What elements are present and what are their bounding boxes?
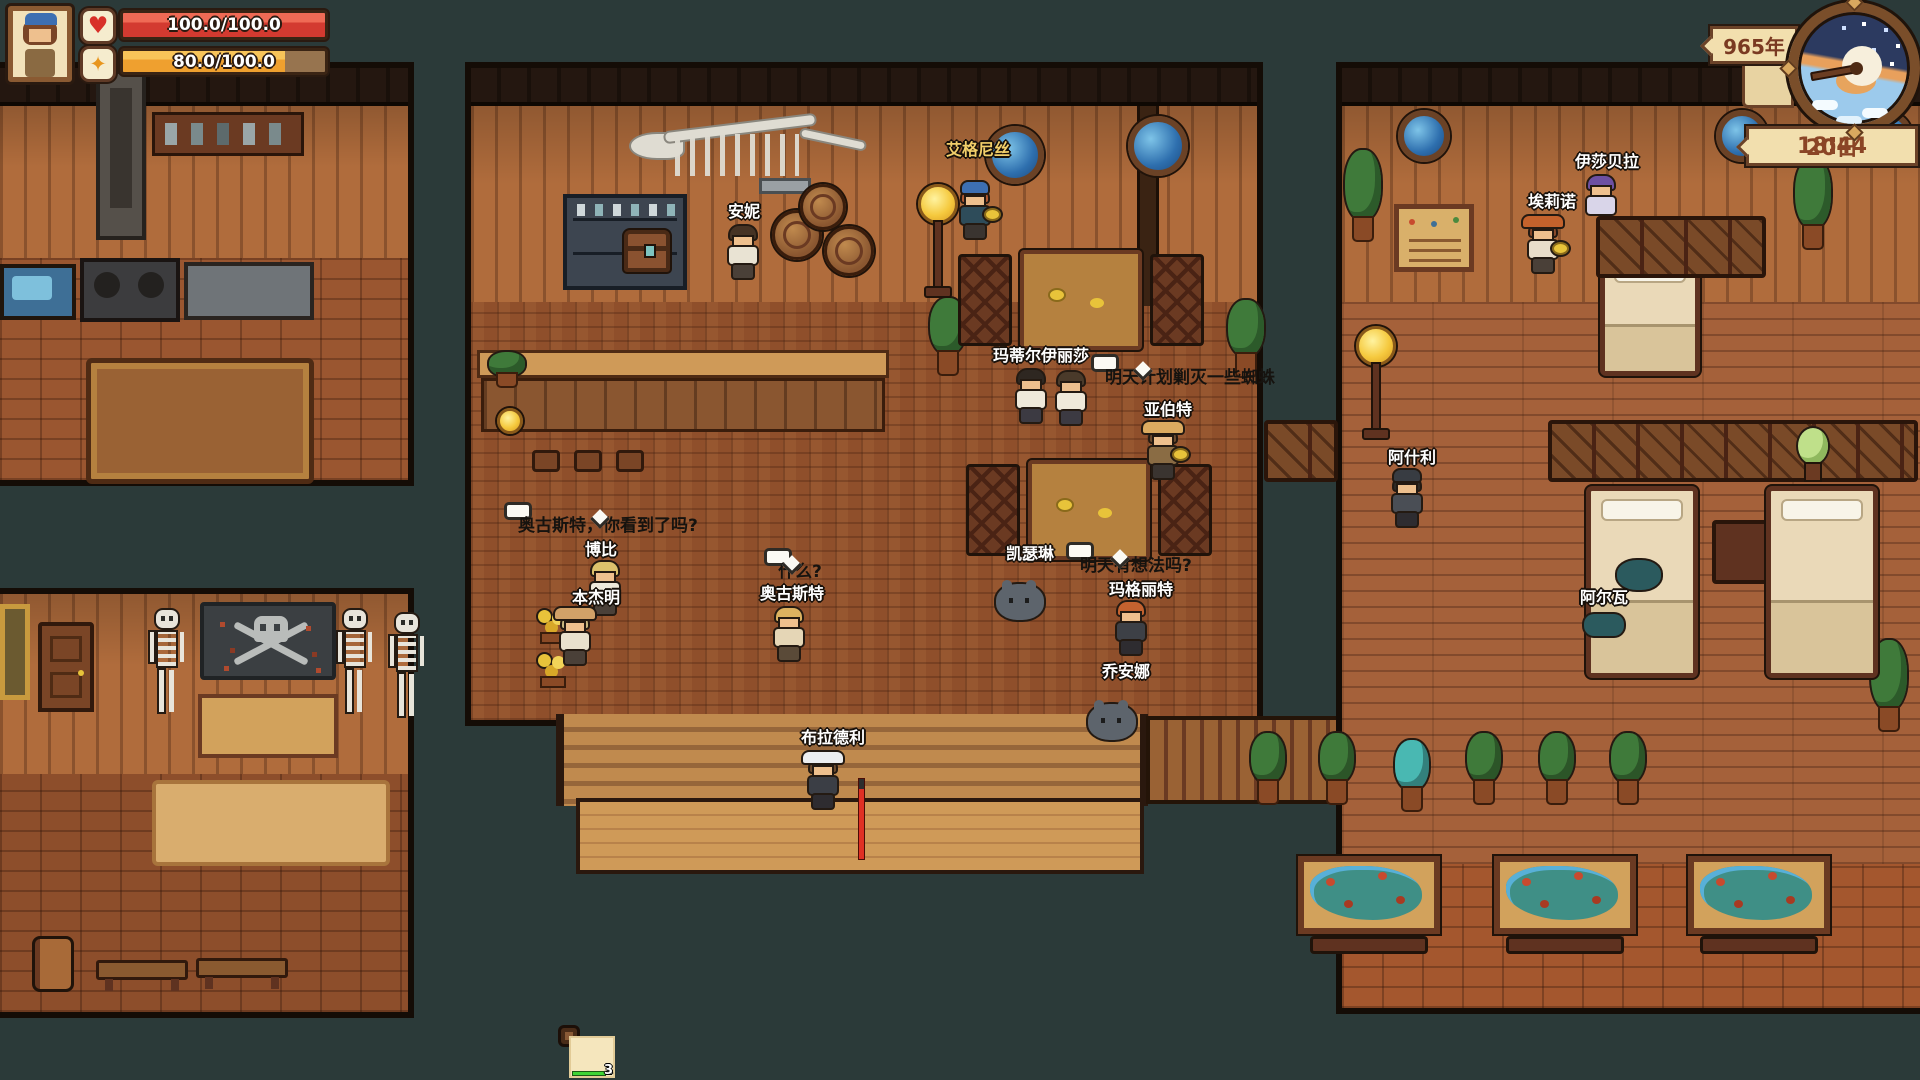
hotbar: 313 — [561, 1028, 577, 1044]
skeleton-skull — [344, 610, 366, 628]
treasure-chest[interactable] — [624, 230, 670, 272]
bubble-august-question: 奥古斯特，你看到了吗? — [504, 502, 532, 520]
plant-pot — [1352, 216, 1374, 242]
deck-plant — [1395, 740, 1429, 826]
dining-table-set — [958, 250, 1206, 350]
npc-margaret[interactable] — [1114, 602, 1148, 662]
npc-legs — [1021, 409, 1041, 422]
plant-foliage — [1467, 733, 1501, 783]
bulletin-board[interactable] — [1394, 204, 1474, 272]
skeleton-leg — [347, 670, 352, 712]
npc-name-label: 艾格尼丝 — [946, 136, 1010, 160]
portrait-body — [25, 49, 55, 77]
plant-foliage — [1320, 733, 1354, 783]
npc-torso — [1587, 197, 1615, 214]
bar-stool — [574, 450, 602, 472]
year-banner: 965年 — [1710, 26, 1798, 64]
npc-hat — [803, 752, 843, 763]
tide-pool-table — [1688, 856, 1830, 956]
npc-matilda-companion[interactable] — [1054, 372, 1088, 432]
durability-bar — [572, 1071, 606, 1076]
lamp-base — [1362, 428, 1390, 440]
npc-name-label: 布拉德利 — [801, 724, 865, 748]
tide-pool-table — [1298, 856, 1440, 956]
npc-face — [1062, 383, 1080, 392]
bed-blanket — [1771, 600, 1873, 673]
npc-face — [966, 197, 984, 206]
npc-face — [1122, 613, 1140, 622]
creature-ear — [1002, 580, 1012, 589]
npc-albert[interactable] — [1146, 422, 1180, 482]
museum-rug — [152, 780, 390, 866]
energy-value: 80.0/100.0 — [123, 51, 325, 72]
lamp-post — [918, 184, 958, 310]
npc-face — [596, 573, 614, 582]
npc-name-label: 阿什利 — [1388, 444, 1436, 468]
npc-hat — [555, 608, 595, 619]
deck-plant — [1251, 733, 1285, 819]
npc-name-label: 玛蒂尔伊丽莎 — [993, 342, 1089, 366]
skeleton-ribs — [346, 632, 364, 666]
npc-benjamin[interactable] — [558, 608, 592, 668]
creature-eye — [1009, 598, 1013, 603]
table-base — [1506, 936, 1624, 954]
health-icon-box: ♥ — [80, 8, 116, 44]
kitchen-table — [86, 358, 314, 484]
crab-icon — [1716, 878, 1725, 886]
npc-torso — [1393, 495, 1421, 512]
kitchen-room — [0, 62, 414, 486]
bed-blanket — [1605, 324, 1695, 371]
plant-foliage — [1795, 158, 1831, 228]
sleeping-body — [1584, 614, 1624, 636]
skeleton-exhibit — [388, 614, 426, 754]
npc-name-label: 奥古斯特 — [760, 580, 824, 604]
npc-name-label: 玛格丽特 — [1109, 576, 1173, 600]
bubble-tomorrow: 明天有想法吗? — [1066, 542, 1094, 560]
portrait-hat — [25, 13, 57, 25]
skeleton-ribs — [398, 636, 416, 670]
kitchen-counter — [184, 262, 314, 320]
bed-pillow — [1601, 499, 1683, 521]
nightstand — [1712, 520, 1768, 584]
food-plate-icon — [984, 208, 1001, 221]
npc-legs — [1153, 465, 1173, 478]
plant-pot — [1257, 779, 1279, 805]
kitchen-shelf — [152, 112, 304, 156]
npc-torso — [561, 633, 589, 650]
bench — [96, 960, 188, 980]
npc-torso — [729, 247, 757, 264]
skeleton-leg — [159, 670, 164, 712]
npc-name-label: 亚伯特 — [1144, 396, 1192, 420]
chest-lock-icon — [644, 244, 656, 258]
bench-leg — [105, 979, 113, 991]
game-screen: 安妮艾格尼丝玛蒂尔伊丽莎亚伯特凯瑟琳玛格丽特乔安娜奥古斯特博比本杰明布拉德利阿什… — [0, 0, 1920, 1080]
npc-name-label: 本杰明 — [572, 584, 620, 608]
npc-ashley[interactable] — [1390, 470, 1424, 530]
plant-foliage — [1345, 150, 1381, 220]
npc-torso — [775, 629, 803, 646]
day-night-clock — [1788, 2, 1920, 134]
bed-pillow — [1781, 499, 1863, 521]
tavern-wall-top — [471, 68, 1257, 106]
cloud-icon — [1812, 100, 1838, 110]
health-bar: 100.0/100.0 — [120, 10, 328, 40]
plant-foliage — [1395, 740, 1429, 790]
plant-pot — [937, 350, 959, 376]
lamp-post — [1356, 326, 1396, 452]
npc-face — [734, 237, 752, 246]
npc-name-label: 埃莉诺 — [1528, 188, 1576, 212]
npc-name-label: 安妮 — [728, 198, 760, 222]
food-plate-icon — [1172, 448, 1189, 461]
basket — [540, 676, 566, 688]
plant-foliage — [1251, 733, 1285, 783]
plant-pot — [1802, 224, 1824, 250]
creature-ear — [1094, 700, 1104, 709]
bed[interactable] — [1766, 486, 1878, 678]
npc-agnes[interactable] — [958, 182, 992, 242]
crab-icon — [1522, 878, 1531, 886]
barrel — [32, 936, 74, 992]
bench-row — [1548, 420, 1918, 482]
npc-hat — [1143, 422, 1183, 433]
npc-legs — [565, 651, 585, 664]
npc-face — [1398, 485, 1416, 494]
npc-legs — [779, 647, 799, 660]
npc-name-label: 伊莎贝拉 — [1575, 148, 1639, 172]
npc-isabella[interactable] — [1584, 176, 1618, 236]
bench-leg — [205, 977, 213, 989]
crab-icon — [1326, 878, 1335, 886]
skeleton-leg — [399, 674, 404, 716]
year-label: 965年 — [1723, 31, 1785, 60]
potted-plant — [489, 352, 525, 396]
heart-icon: ♥ — [88, 15, 109, 38]
plant-foliage — [1228, 300, 1264, 356]
energy-icon: ✦ — [89, 54, 107, 75]
npc-bradley[interactable] — [806, 752, 840, 812]
gold-frame — [0, 604, 30, 700]
lamp-glow-icon — [1356, 326, 1396, 366]
npc-hat — [1523, 216, 1563, 227]
portrait-face — [29, 29, 51, 42]
plant-pot — [1401, 786, 1423, 812]
porthole-icon — [1128, 116, 1188, 176]
energy-bar: 80.0/100.0 — [120, 48, 328, 75]
plant-stand — [1804, 462, 1822, 482]
kitchen-sink[interactable] — [0, 264, 76, 320]
npc-annie[interactable] — [726, 226, 760, 286]
bubble-what: 什么? — [764, 548, 792, 566]
npc-legs — [813, 795, 833, 808]
skeleton-skull — [396, 614, 418, 632]
lamp-post — [497, 408, 523, 452]
skeleton-skull — [156, 610, 178, 628]
creature-eye — [1101, 718, 1105, 723]
bench-left — [958, 254, 1012, 346]
deck-plant — [1540, 733, 1574, 819]
skeleton-arm — [150, 632, 154, 662]
lamp-base — [924, 286, 952, 298]
npc-face — [814, 767, 832, 776]
clock-knob — [1850, 62, 1863, 75]
npc-joanna[interactable] — [1094, 686, 1128, 746]
table-base — [1700, 936, 1818, 954]
npc-matilda-elisa[interactable] — [1014, 370, 1048, 430]
npc-legs — [965, 225, 985, 238]
player-portrait[interactable] — [8, 6, 72, 82]
egg-foliage — [1798, 428, 1828, 464]
barrel-band — [783, 221, 811, 249]
npc-august[interactable] — [772, 608, 806, 668]
potted-plant — [1795, 158, 1831, 268]
bench-row — [1264, 420, 1338, 482]
lamp-glow-icon — [918, 184, 958, 224]
player-cursor-marker — [858, 778, 865, 860]
npc-face — [566, 623, 584, 632]
creature-body — [996, 584, 1044, 620]
bench-right — [1150, 254, 1204, 346]
plant-foliage — [1611, 733, 1645, 783]
skeleton-arm — [390, 636, 394, 666]
npc-hat — [1394, 470, 1420, 481]
creature-body — [1088, 704, 1136, 740]
tide-pool-table — [1494, 856, 1636, 956]
chimney — [96, 70, 146, 240]
npc-face — [1534, 231, 1552, 240]
npc-face — [1154, 437, 1172, 446]
datetime-banner: 20日 18:44 — [1746, 126, 1918, 166]
npc-legs — [1397, 513, 1417, 526]
plant-pot — [1473, 779, 1495, 805]
npc-legs — [1121, 641, 1141, 654]
flowers-icon — [538, 654, 551, 667]
deck-fence — [1146, 716, 1344, 804]
barrel-band — [810, 194, 836, 220]
plant-pot — [1326, 779, 1348, 805]
npc-face — [1592, 187, 1610, 196]
bar-counter — [477, 350, 889, 434]
bench — [196, 958, 288, 978]
lamp-pole — [1371, 362, 1381, 432]
barrel — [824, 226, 874, 276]
npc-hat — [962, 182, 988, 193]
bar-stool — [532, 450, 560, 472]
plant-pot — [1546, 779, 1568, 805]
potted-plant — [1345, 150, 1381, 260]
bubble-text: 明天计划剿灭一些蜘蛛 — [1105, 363, 1275, 388]
table-base — [1310, 936, 1428, 954]
bubble-text: 明天有想法吗? — [1080, 551, 1192, 576]
food-plate-icon — [1552, 242, 1569, 255]
stars-icon — [1862, 22, 1866, 26]
npc-name-label: 凯瑟琳 — [1006, 540, 1054, 564]
plate-icon — [1056, 498, 1074, 512]
museum-counter — [198, 694, 338, 758]
npc-alva[interactable] — [1584, 610, 1618, 670]
npc-legs — [1061, 411, 1081, 424]
npc-kathleen[interactable] — [1002, 566, 1036, 626]
kitchen-stove[interactable] — [80, 258, 180, 322]
skeleton-exhibit — [148, 610, 186, 750]
porthole-icon — [1398, 110, 1450, 162]
wall-plaque — [759, 178, 811, 194]
deck-plant — [1467, 733, 1501, 819]
npc-torso — [1017, 391, 1045, 408]
egg-plant — [1794, 428, 1832, 486]
plant-foliage — [1540, 733, 1574, 783]
whale-skeleton — [631, 110, 867, 190]
npc-torso — [809, 777, 837, 794]
bubble-spider: 明天计划剿灭一些蜘蛛 — [1091, 354, 1119, 372]
barrel — [800, 184, 846, 230]
skeleton-eye — [161, 616, 165, 621]
flowers-icon — [538, 610, 551, 623]
lamp-glow-icon — [497, 408, 523, 434]
skeleton-ribs — [158, 632, 176, 666]
bar-stool — [616, 450, 644, 472]
barrel-band — [835, 237, 863, 265]
npc-name-label: 阿尔瓦 — [1580, 584, 1628, 608]
table — [1020, 250, 1142, 350]
bubble-text: 奥古斯特，你看到了吗? — [518, 511, 698, 536]
health-value: 100.0/100.0 — [123, 13, 325, 37]
npc-face — [1022, 381, 1040, 390]
lamp-pole — [933, 220, 943, 290]
door[interactable] — [38, 622, 94, 712]
plant-pot — [1617, 779, 1639, 805]
skeleton-eye — [401, 620, 405, 625]
skeleton-eye — [349, 616, 353, 621]
skull-flag — [200, 602, 336, 680]
npc-legs — [1533, 259, 1553, 272]
banner-arrow — [1700, 36, 1720, 56]
skeleton-exhibit — [336, 610, 374, 750]
npc-face — [780, 619, 798, 628]
plant-pot — [1878, 706, 1900, 732]
skeleton-arm — [338, 632, 342, 662]
plate-icon — [1048, 288, 1066, 302]
npc-elinor[interactable] — [1526, 216, 1560, 276]
energy-icon-box: ✦ — [80, 46, 116, 82]
npc-torso — [1117, 623, 1145, 640]
item-count: 3 — [604, 1063, 613, 1078]
npc-name-label: 博比 — [585, 536, 617, 560]
plant-pot — [496, 372, 518, 388]
npc-legs — [733, 265, 753, 278]
deck-plant — [1320, 733, 1354, 819]
npc-torso — [1057, 393, 1085, 410]
npc-name-label: 乔安娜 — [1102, 658, 1150, 682]
deck-plant — [1611, 733, 1645, 819]
bench-row — [1596, 216, 1766, 278]
